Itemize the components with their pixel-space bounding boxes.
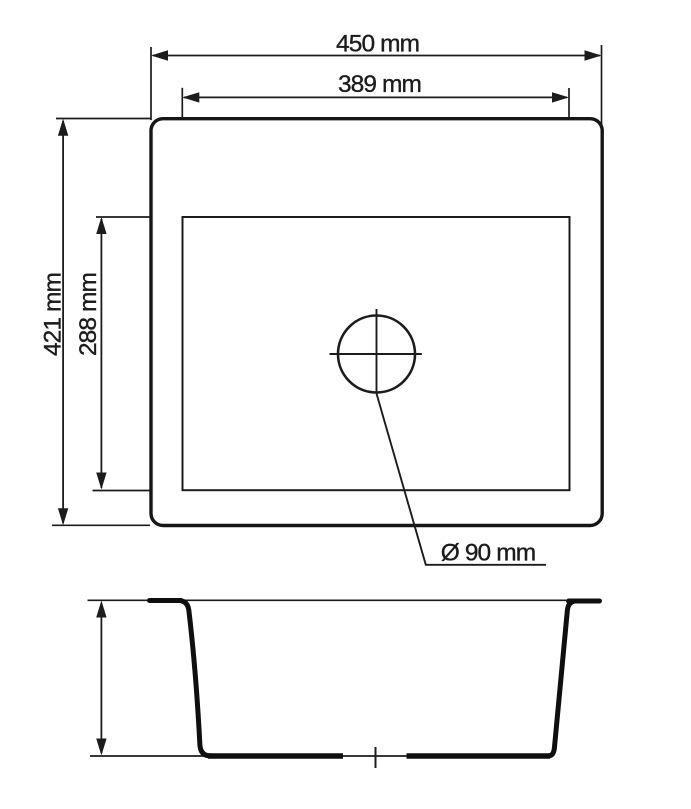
svg-text:421 mm: 421 mm — [40, 273, 67, 356]
svg-text:Ø 90 mm: Ø 90 mm — [441, 540, 535, 567]
svg-text:450 mm: 450 mm — [336, 30, 419, 57]
svg-text:389 mm: 389 mm — [338, 71, 421, 98]
svg-text:288 mm: 288 mm — [75, 273, 102, 356]
